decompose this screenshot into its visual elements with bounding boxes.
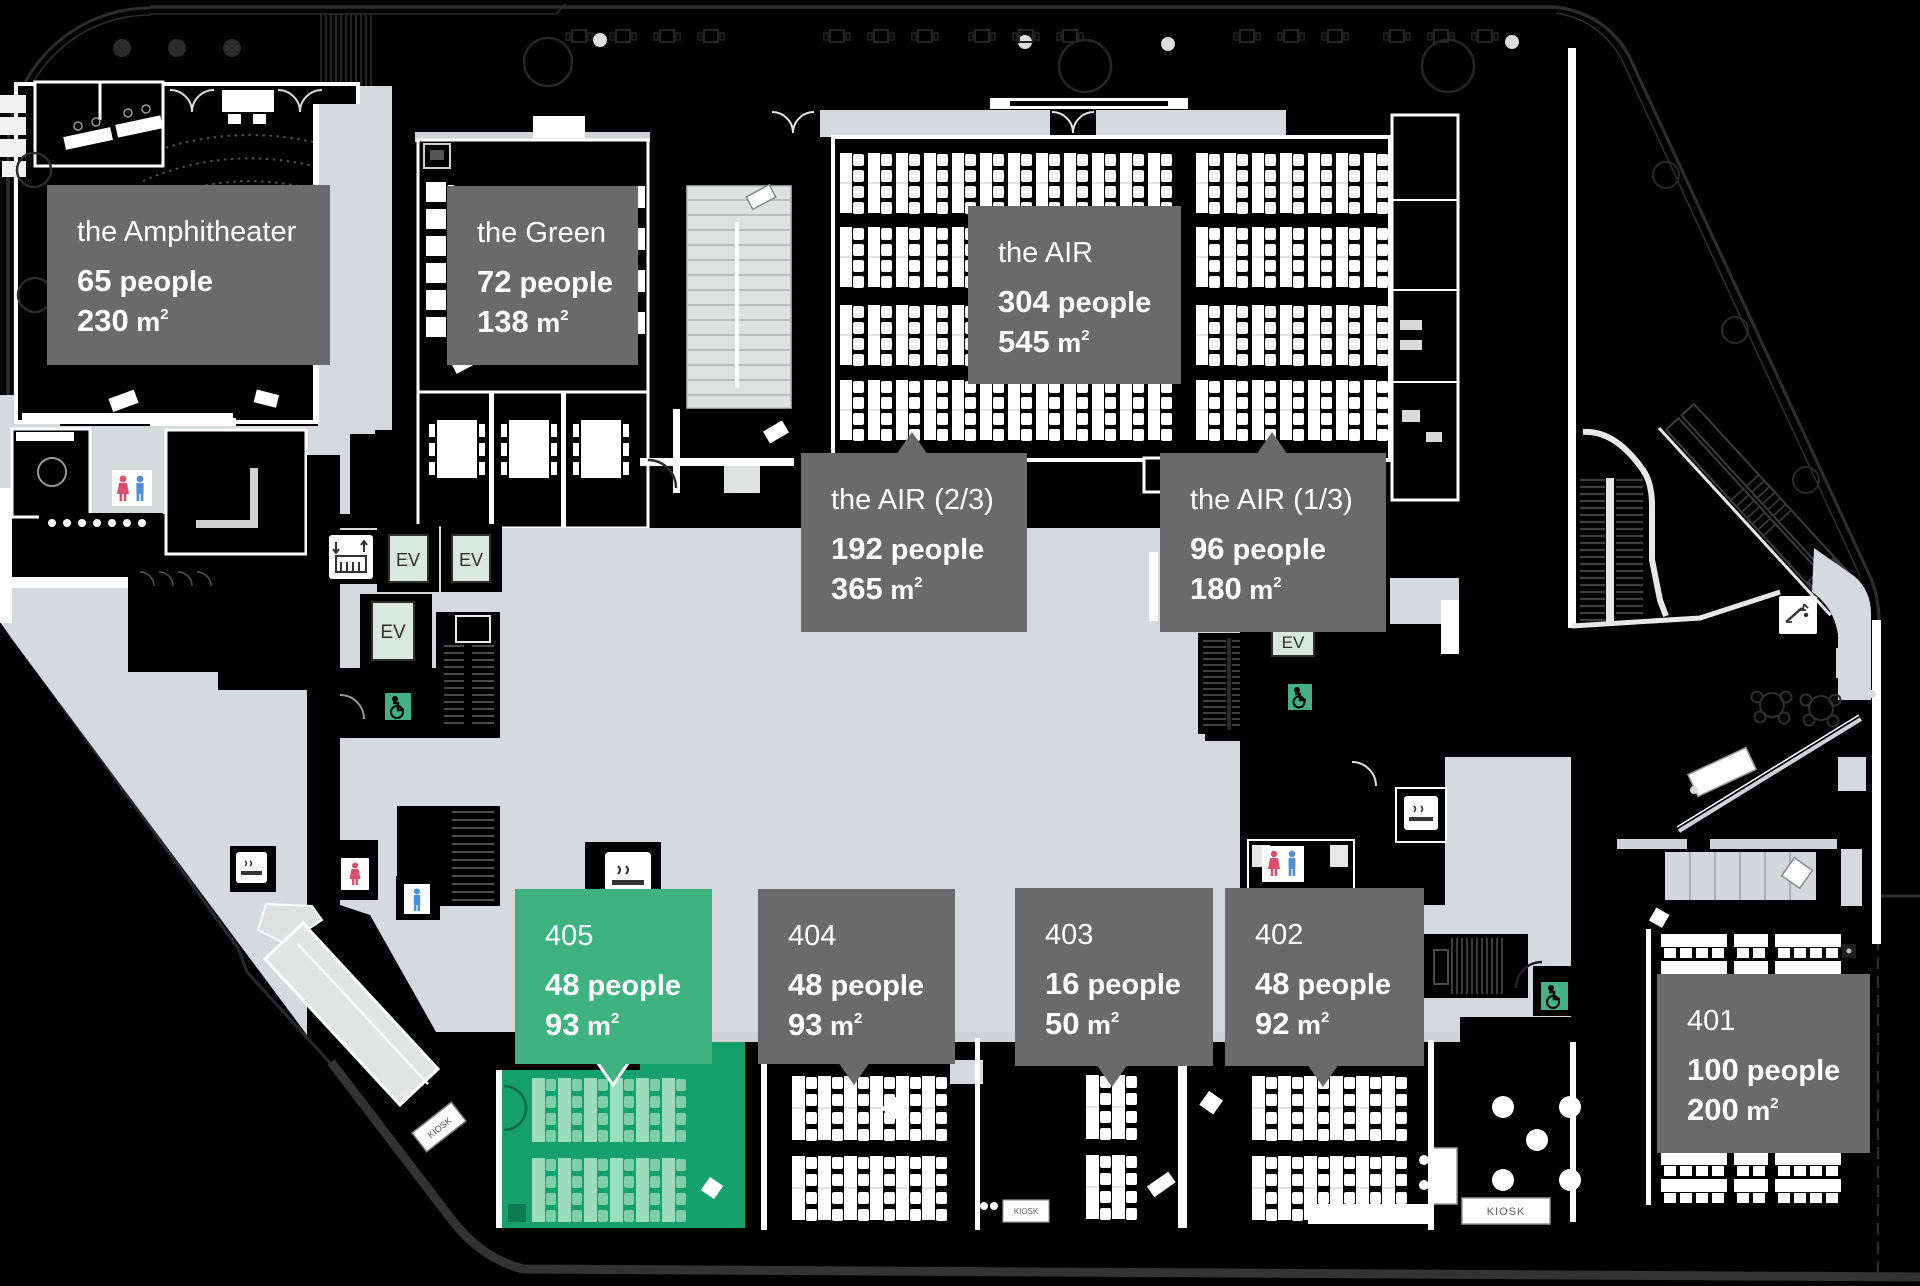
svg-text:the AIR (2/3): the AIR (2/3) [831,484,994,516]
svg-text:402: 402 [1255,919,1303,951]
svg-text:304 people: 304 people [998,284,1151,319]
svg-text:93 m2: 93 m2 [788,1007,862,1042]
svg-text:the AIR (1/3): the AIR (1/3) [1190,484,1353,516]
svg-text:48 people: 48 people [545,967,681,1002]
svg-text:the AIR: the AIR [998,237,1093,269]
svg-text:48 people: 48 people [788,967,924,1002]
svg-text:EV: EV [459,550,483,570]
svg-text:230 m2: 230 m2 [77,303,169,338]
svg-text:138 m2: 138 m2 [477,304,569,339]
svg-text:96 people: 96 people [1190,531,1326,566]
svg-text:EV: EV [380,622,406,643]
svg-text:EV: EV [1282,633,1305,652]
svg-text:93 m2: 93 m2 [545,1007,619,1042]
svg-text:192 people: 192 people [831,531,984,566]
svg-text:the Green: the Green [477,217,606,249]
svg-text:KIOSK: KIOSK [1014,1207,1039,1216]
svg-text:EV: EV [396,550,420,570]
svg-text:the Amphitheater: the Amphitheater [77,216,297,248]
svg-text:50 m2: 50 m2 [1045,1006,1119,1041]
svg-text:404: 404 [788,920,836,952]
svg-text:92 m2: 92 m2 [1255,1006,1329,1041]
svg-text:16 people: 16 people [1045,966,1181,1001]
svg-text:200 m2: 200 m2 [1687,1092,1779,1127]
svg-text:180 m2: 180 m2 [1190,571,1282,606]
svg-text:65 people: 65 people [77,263,213,298]
svg-text:48 people: 48 people [1255,966,1391,1001]
svg-text:100 people: 100 people [1687,1052,1840,1087]
svg-text:365 m2: 365 m2 [831,571,923,606]
svg-text:403: 403 [1045,919,1093,951]
svg-text:KIOSK: KIOSK [1487,1206,1526,1218]
svg-text:401: 401 [1687,1005,1735,1037]
svg-text:72 people: 72 people [477,264,613,299]
svg-text:545 m2: 545 m2 [998,324,1090,359]
svg-text:405: 405 [545,920,593,952]
